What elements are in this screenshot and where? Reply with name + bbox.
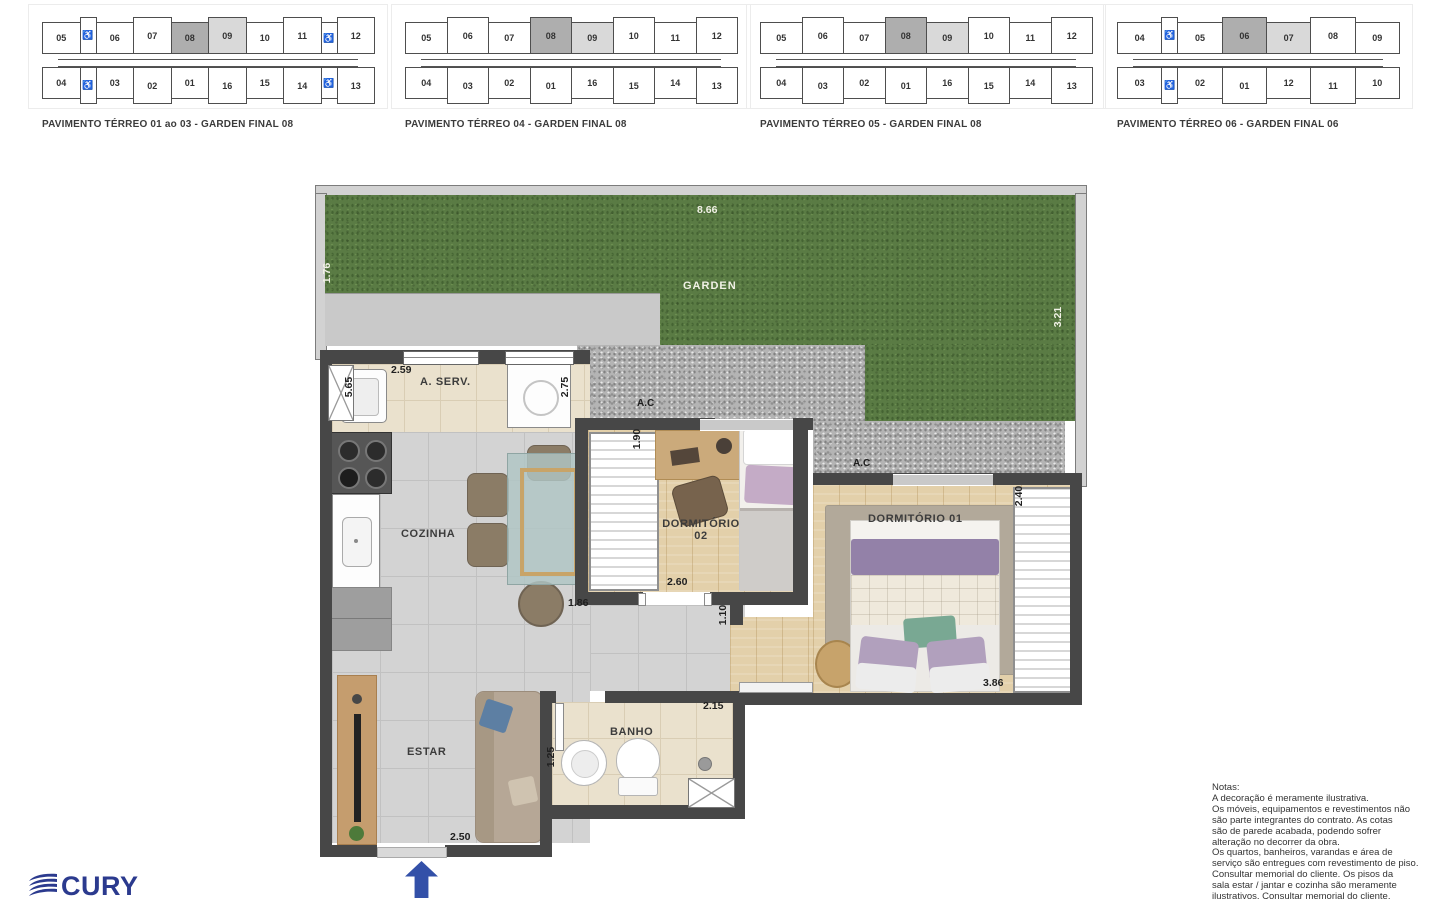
keyplan-graphic: 0506070809101112 0403020116151413 bbox=[405, 16, 737, 99]
dim-garden-left: 1.76 bbox=[321, 263, 333, 283]
dining-stool bbox=[518, 581, 564, 627]
unit-cell: 08 bbox=[171, 22, 210, 54]
notes-line: são parte integrantes do contrato. As co… bbox=[1212, 816, 1440, 827]
keyplan-terreo-01-03: 05♿060708091011♿12 04♿030201161514♿13 PA… bbox=[42, 16, 374, 130]
unit-cell: 12 bbox=[696, 17, 739, 54]
unit-cell: 07 bbox=[133, 17, 172, 54]
entry-arrow bbox=[405, 861, 438, 898]
plant bbox=[349, 826, 364, 841]
wall bbox=[793, 418, 808, 597]
toilet-tank bbox=[618, 777, 658, 796]
aserv-window bbox=[403, 351, 479, 365]
wall bbox=[1070, 473, 1082, 705]
floorplan-page: 05♿060708091011♿12 04♿030201161514♿13 PA… bbox=[0, 0, 1440, 900]
unit-cell: 11 bbox=[654, 22, 697, 54]
unit-cell: 03 bbox=[96, 67, 135, 99]
unit-cell: 16 bbox=[208, 67, 247, 104]
door-jamb bbox=[638, 593, 646, 606]
dorm2-label: DORMITÓRIO 02 bbox=[645, 518, 757, 542]
dim-aserv-right: 2.75 bbox=[559, 377, 571, 397]
unit-cell: 15 bbox=[968, 67, 1011, 104]
unit-cell: 15 bbox=[246, 67, 285, 99]
dorm2-desk bbox=[655, 430, 747, 480]
unit-cell: 05 bbox=[405, 22, 448, 54]
dorm2-label-line2: 02 bbox=[645, 530, 757, 542]
dim-garden-right: 3.21 bbox=[1052, 307, 1064, 327]
estar-label: ESTAR bbox=[407, 746, 446, 758]
blanket-purple bbox=[851, 539, 999, 575]
keyplan-terreo-04: 0506070809101112 0403020116151413 PAVIME… bbox=[405, 16, 737, 130]
wall bbox=[745, 693, 1082, 705]
unit-cell: 12 bbox=[337, 17, 376, 54]
vase-decor bbox=[352, 694, 362, 704]
bathroom-sink bbox=[561, 740, 607, 786]
banho-door-leaf bbox=[555, 703, 564, 751]
unit-cell: 04 bbox=[405, 67, 448, 99]
wheelchair-icon: ♿ bbox=[321, 67, 338, 99]
keyplan-graphic: 04♿0506070809 03♿0201121110 bbox=[1117, 16, 1399, 99]
keyplan-graphic: 0506070809101112 0403020116151413 bbox=[760, 16, 1092, 99]
shaft-duct bbox=[688, 778, 735, 808]
wall bbox=[320, 350, 332, 855]
wheelchair-icon: ♿ bbox=[1161, 67, 1178, 104]
unit-cell: 10 bbox=[968, 17, 1011, 54]
pillow-white-left bbox=[855, 662, 917, 693]
unit-cell: 01 bbox=[530, 67, 573, 104]
fridge-cabinet bbox=[330, 587, 392, 651]
keyplan-bottom-row: 04♿030201161514♿13 bbox=[42, 67, 374, 99]
unit-cell: 03 bbox=[802, 67, 845, 104]
keyplan-bottom-row: 0403020116151413 bbox=[405, 67, 737, 99]
wall bbox=[575, 418, 715, 430]
dim-dorm1-height: 2.40 bbox=[1013, 486, 1025, 506]
unit-cell: 08 bbox=[885, 17, 928, 54]
unit-cell: 09 bbox=[571, 22, 614, 54]
keyplan-label: PAVIMENTO TÉRREO 06 - GARDEN FINAL 06 bbox=[1117, 119, 1399, 130]
keyplan-label: PAVIMENTO TÉRREO 05 - GARDEN FINAL 08 bbox=[760, 119, 1092, 130]
door-jamb bbox=[704, 593, 712, 606]
sofa bbox=[475, 691, 543, 843]
pillow-white-right bbox=[929, 662, 991, 693]
unit-cell: 02 bbox=[133, 67, 172, 104]
unit-cell: 14 bbox=[1009, 67, 1052, 99]
dorm2-sliding-door bbox=[700, 419, 795, 431]
sofa-pillow bbox=[508, 776, 539, 807]
unit-cell: 09 bbox=[926, 22, 969, 54]
notes-line: são de parede acabada, podendo sofrer bbox=[1212, 827, 1440, 838]
toilet bbox=[616, 738, 660, 782]
ac-label-2: A.C bbox=[853, 458, 870, 469]
aserv-window bbox=[505, 351, 574, 365]
banho-label: BANHO bbox=[610, 726, 653, 738]
dim-banho-width: 2.15 bbox=[703, 700, 723, 712]
wall bbox=[540, 691, 556, 703]
dim-garden-width: 8.66 bbox=[697, 204, 717, 216]
pillow-lilac bbox=[744, 465, 800, 506]
entry-threshold bbox=[377, 847, 447, 858]
unit-cell: 08 bbox=[1310, 17, 1355, 54]
dim-kitchen-width: 1.86 bbox=[568, 597, 588, 609]
keyplan-corridor bbox=[1133, 59, 1383, 67]
main-floorplan: 8.66 GARDEN 1.76 3.21 A.C A.C 5.65 2.59 … bbox=[315, 185, 1085, 857]
wall bbox=[730, 605, 743, 625]
wall bbox=[605, 691, 745, 703]
unit-cell: 10 bbox=[246, 22, 285, 54]
unit-cell: 04 bbox=[42, 67, 81, 99]
unit-cell: 06 bbox=[447, 17, 490, 54]
dorm2-label-line1: DORMITÓRIO bbox=[645, 518, 757, 530]
keyplan-bottom-row: 0403020116151413 bbox=[760, 67, 1092, 99]
unit-cell: 06 bbox=[1222, 17, 1267, 54]
notes-line: ilustrativos. Consultar memorial do clie… bbox=[1212, 892, 1440, 900]
keyplan-label: PAVIMENTO TÉRREO 04 - GARDEN FINAL 08 bbox=[405, 119, 737, 130]
dim-banho-height: 1.25 bbox=[545, 747, 557, 767]
unit-cell: 07 bbox=[843, 22, 886, 54]
unit-cell: 01 bbox=[885, 67, 928, 104]
unit-cell: 09 bbox=[1355, 22, 1400, 54]
dim-aserv-width: 2.59 bbox=[391, 364, 411, 376]
unit-cell: 04 bbox=[760, 67, 803, 99]
keyplan-corridor bbox=[776, 59, 1076, 67]
keyplan-top-row: 05♿060708091011♿12 bbox=[42, 22, 374, 59]
wall bbox=[320, 845, 377, 857]
garden-concrete-path bbox=[325, 293, 660, 346]
desk-object bbox=[670, 447, 700, 466]
keyplan-corridor bbox=[58, 59, 358, 67]
dim-dorm2-height: 1.90 bbox=[631, 429, 643, 449]
dim-estar-width: 2.50 bbox=[450, 831, 470, 843]
gravel-ac-area-1 bbox=[577, 345, 865, 421]
keyplan-bottom-row: 03♿0201121110 bbox=[1117, 67, 1399, 99]
dim-aserv-height: 5.65 bbox=[343, 377, 355, 397]
unit-cell: 02 bbox=[488, 67, 531, 99]
shower-head bbox=[698, 757, 712, 771]
wheelchair-icon: ♿ bbox=[80, 67, 97, 104]
unit-cell: 08 bbox=[530, 17, 573, 54]
dim-dorm2-width: 2.60 bbox=[667, 576, 687, 588]
unit-cell: 15 bbox=[613, 67, 656, 104]
dorm1-wardrobe bbox=[1013, 487, 1072, 693]
unit-cell: 03 bbox=[1117, 67, 1162, 99]
keyplan-corridor bbox=[421, 59, 721, 67]
unit-cell: 13 bbox=[1051, 67, 1094, 104]
unit-cell: 13 bbox=[696, 67, 739, 104]
dorm1-sliding-door bbox=[893, 474, 993, 486]
unit-cell: 03 bbox=[447, 67, 490, 104]
unit-cell: 02 bbox=[1177, 67, 1222, 99]
unit-cell: 11 bbox=[1009, 22, 1052, 54]
dorm1-label: DORMITÓRIO 01 bbox=[868, 513, 963, 525]
unit-cell: 05 bbox=[760, 22, 803, 54]
unit-cell: 07 bbox=[488, 22, 531, 54]
unit-cell: 02 bbox=[843, 67, 886, 99]
cozinha-label: COZINHA bbox=[401, 528, 455, 540]
garden-label: GARDEN bbox=[683, 280, 737, 292]
unit-cell: 11 bbox=[1310, 67, 1355, 104]
keyplan-graphic: 05♿060708091011♿12 04♿030201161514♿13 bbox=[42, 16, 374, 99]
unit-cell: 10 bbox=[613, 17, 656, 54]
cooktop-stove bbox=[330, 432, 392, 494]
wall bbox=[710, 592, 808, 605]
dim-dorm1-width: 3.86 bbox=[983, 677, 1003, 689]
wheelchair-icon: ♿ bbox=[1161, 17, 1178, 54]
keyplan-top-row: 04♿0506070809 bbox=[1117, 22, 1399, 59]
unit-cell: 06 bbox=[96, 22, 135, 54]
unit-cell: 11 bbox=[283, 17, 322, 54]
dining-chair bbox=[467, 473, 509, 517]
wall bbox=[575, 418, 588, 592]
dorm2-wardrobe bbox=[589, 432, 659, 591]
unit-cell: 06 bbox=[802, 17, 845, 54]
cury-logo: CURY bbox=[28, 871, 139, 900]
unit-cell: 04 bbox=[1117, 22, 1162, 54]
keyplan-label: PAVIMENTO TÉRREO 01 ao 03 - GARDEN FINAL… bbox=[42, 119, 374, 130]
gravel-ac-area-2 bbox=[813, 421, 1065, 473]
keyplan-terreo-06: 04♿0506070809 03♿0201121110 PAVIMENTO TÉ… bbox=[1117, 16, 1399, 130]
unit-cell: 12 bbox=[1266, 67, 1311, 99]
notes-block: Notas: A decoração é meramente ilustrati… bbox=[1212, 783, 1440, 900]
unit-cell: 12 bbox=[1051, 17, 1094, 54]
unit-cell: 05 bbox=[42, 22, 81, 54]
unit-cell: 10 bbox=[1355, 67, 1400, 99]
tv-sideboard bbox=[337, 675, 377, 845]
dining-chair bbox=[467, 523, 509, 567]
garden-grass-lower bbox=[865, 345, 1075, 421]
unit-cell: 16 bbox=[926, 67, 969, 99]
ac-label-1: A.C bbox=[637, 398, 654, 409]
keyplan-top-row: 0506070809101112 bbox=[760, 22, 1092, 59]
wall bbox=[445, 845, 552, 857]
garden-fence-right bbox=[1075, 193, 1087, 487]
dorm1-double-bed bbox=[850, 520, 1000, 692]
tv bbox=[354, 714, 361, 822]
aserv-label: A. SERV. bbox=[420, 376, 471, 388]
unit-cell: 01 bbox=[1222, 67, 1267, 104]
cury-logo-text: CURY bbox=[61, 871, 139, 900]
desk-lamp bbox=[716, 438, 732, 454]
wheelchair-icon: ♿ bbox=[80, 17, 97, 54]
unit-cell: 13 bbox=[337, 67, 376, 104]
unit-cell: 07 bbox=[1266, 22, 1311, 54]
dim-corridor: 1.10 bbox=[717, 605, 729, 625]
unit-cell: 05 bbox=[1177, 22, 1222, 54]
keyplan-terreo-05: 0506070809101112 0403020116151413 PAVIME… bbox=[760, 16, 1092, 130]
dorm1-door bbox=[739, 682, 813, 693]
unit-cell: 14 bbox=[283, 67, 322, 104]
unit-cell: 01 bbox=[171, 67, 210, 99]
unit-cell: 09 bbox=[208, 17, 247, 54]
unit-cell: 16 bbox=[571, 67, 614, 99]
cury-logo-icon bbox=[28, 873, 58, 900]
unit-cell: 14 bbox=[654, 67, 697, 99]
wheelchair-icon: ♿ bbox=[321, 22, 338, 54]
keyplan-top-row: 0506070809101112 bbox=[405, 22, 737, 59]
wall bbox=[540, 691, 552, 857]
